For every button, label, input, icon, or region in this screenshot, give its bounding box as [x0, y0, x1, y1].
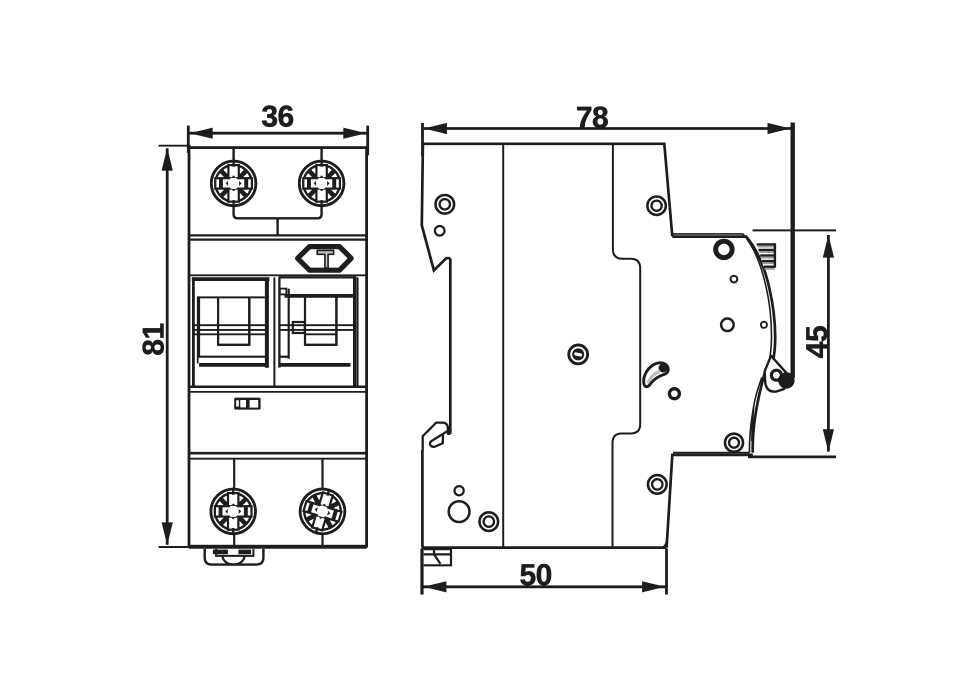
svg-text:36: 36 — [261, 101, 293, 134]
svg-text:50: 50 — [520, 559, 552, 592]
svg-text:45: 45 — [801, 326, 834, 358]
svg-text:78: 78 — [576, 101, 608, 134]
svg-text:81: 81 — [137, 323, 170, 355]
